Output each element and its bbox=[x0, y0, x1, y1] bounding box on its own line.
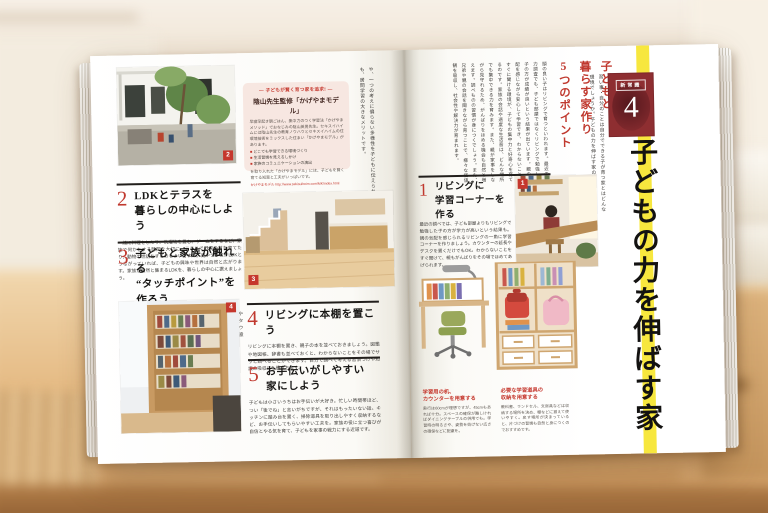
left-page: 2 ― 子どもが賢く育つ家を追求! ― 陰山先生監修「かげやまモデル」 早寝早起… bbox=[90, 50, 412, 464]
office-chair-icon bbox=[434, 311, 472, 359]
kageyama-bullet-list: ■ どこでも学習できる環境づくり ■ 生活習慣を見えるしかけ ■ 家族のコミュニ… bbox=[250, 147, 344, 166]
kageyama-bullet: ■ 家族のコミュニケーションの演出 bbox=[250, 159, 344, 167]
terrace-photo-graphic bbox=[116, 65, 236, 165]
ldk-photo-graphic bbox=[243, 190, 395, 289]
kageyama-body: 早寝早起き朝ごはん、集中力のつく学習法「かげやまメソッド」でおなじみの陰山英男先… bbox=[249, 117, 344, 147]
photo-number-badge: 1 bbox=[518, 179, 528, 189]
ldk-interior-photo: 3 bbox=[243, 190, 395, 289]
photo-number-badge: 3 bbox=[248, 275, 258, 285]
section-number: 1 bbox=[419, 182, 428, 199]
kageyama-model-box: ― 子どもが賢く育つ家を追求! ― 陰山先生監修「かげやまモデル」 早寝早起き朝… bbox=[243, 81, 351, 171]
magazine-photo-scene: 2 ― 子どもが賢く育つ家を追求! ― 陰山先生監修「かげやまモデル」 早寝早起… bbox=[0, 0, 768, 513]
caption-body: 教科書、ランドセル、文房具などは収納する場所を決め、棚などに揃えて使いやすく。戻… bbox=[501, 403, 570, 434]
photo-number-badge: 2 bbox=[223, 150, 233, 160]
table-front-edge bbox=[0, 485, 768, 513]
caption-title: 学習用の机、カウンターを用意する bbox=[423, 388, 491, 403]
section-title: お手伝いがしやすい家にしよう bbox=[266, 363, 365, 395]
photo-number-badge: 4 bbox=[226, 302, 236, 312]
magazine-spread: 2 ― 子どもが賢く育つ家を追求! ― 陰山先生監修「かげやまモデル」 早寝早起… bbox=[90, 44, 726, 464]
caption-title: 必要な学習道具の収納を用意する bbox=[501, 387, 569, 402]
study-corner-photo: 1 bbox=[515, 174, 599, 268]
caption-desk: 学習用の机、カウンターを用意する 奥行は60cmが理想ですが、45cmもあれば十… bbox=[423, 388, 492, 434]
storage-shelf bbox=[496, 261, 576, 368]
section-number: 4 bbox=[247, 309, 258, 329]
ceiling-shadow-line bbox=[0, 14, 138, 21]
section-rule bbox=[117, 181, 241, 185]
kageyama-title: 陰山先生監修「かげやまモデル」 bbox=[249, 94, 343, 116]
section-number: 5 bbox=[248, 365, 259, 385]
section-5: 5 お手伝いがしやすい家にしよう 子どもは小さいうちはお手伝いが大好き。忙しい時… bbox=[248, 357, 381, 436]
section-title: リビングに本棚を置こう bbox=[265, 307, 380, 340]
bookshelf-photo-graphic bbox=[119, 299, 242, 433]
terrace-photo: 2 bbox=[116, 65, 236, 165]
kageyama-body2: を取り入れた「かげやまモデル」には、子どもを賢く育てる知恵と工夫がいっぱいです。 bbox=[250, 167, 344, 180]
section-number: 2 bbox=[117, 189, 128, 209]
kageyama-url: かげやまモデル http://www.sekisuiheim.com/MK/in… bbox=[251, 180, 345, 187]
right-page: 子どもの力を伸ばす家 頭の良い子はリビングで育つといわれます。最近の学力調査でも… bbox=[404, 44, 726, 458]
study-corner-illustration bbox=[416, 261, 578, 382]
lesson-bag-icon bbox=[543, 296, 570, 325]
article-body-vertical-text: 頭の良い子はリビングで育つといわれます。最近の学力調査でも、子ども部屋ではなくリ… bbox=[416, 61, 550, 188]
bookshelf-photo: 4 bbox=[119, 299, 242, 433]
shinjoshiki-badge: 新常識 4 bbox=[609, 73, 654, 136]
section-rule bbox=[247, 301, 379, 306]
kageyama-tagline: ― 子どもが賢く育つ家を追求! ― bbox=[249, 86, 343, 94]
caption-body: 奥行は60cmが理想ですが、45cmもあれば十分。スペースの確保が難しければダイ… bbox=[423, 404, 492, 435]
badge-label: 新常識 bbox=[616, 79, 645, 91]
section-title: LDKとテラスを暮らしの中心にしよう bbox=[134, 187, 241, 235]
badge-number: 4 bbox=[609, 92, 654, 123]
section-body: 子どもは小さいうちはお手伝いが大好き。忙しい時間帯ほど、つい「後でね」と言いがち… bbox=[249, 397, 382, 435]
desk-hutch-books bbox=[422, 279, 482, 302]
section-number: 3 bbox=[118, 247, 129, 267]
section-title: リビングに学習コーナーを作る bbox=[435, 180, 506, 223]
caption-storage: 必要な学習道具の収納を用意する 教科書、ランドセル、文房具などは収納する場所を決… bbox=[501, 387, 570, 433]
